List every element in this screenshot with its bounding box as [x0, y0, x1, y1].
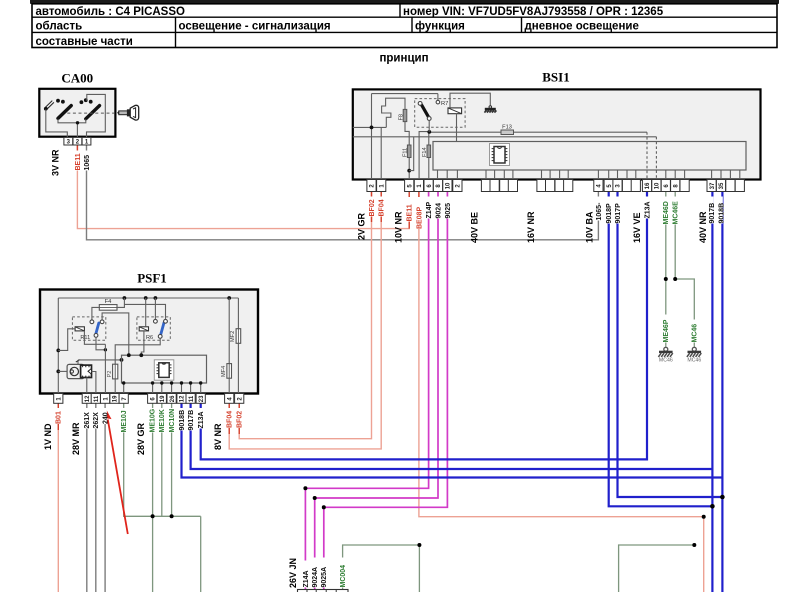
svg-text:9025A: 9025A [321, 567, 328, 588]
svg-text:R6: R6 [146, 335, 153, 341]
svg-text:BF04: BF04 [227, 411, 234, 428]
svg-text:3V NR: 3V NR [51, 149, 61, 176]
svg-text:MF4: MF4 [221, 366, 227, 377]
svg-text:BE11: BE11 [407, 204, 414, 221]
svg-text:16V VE: 16V VE [632, 212, 642, 243]
svg-text:ME46P: ME46P [663, 319, 670, 342]
svg-text:F11: F11 [403, 148, 409, 157]
svg-text:Z13A: Z13A [198, 411, 205, 428]
svg-text:10V BA: 10V BA [585, 211, 595, 243]
svg-text:BE11: BE11 [75, 153, 82, 170]
svg-text:R11: R11 [80, 335, 90, 341]
svg-text:ME10K: ME10K [159, 409, 166, 432]
svg-text:MC46: MC46 [687, 358, 701, 364]
svg-text:40V NR: 40V NR [698, 211, 708, 243]
svg-text:40V BE: 40V BE [470, 212, 480, 243]
svg-text:9017B: 9017B [709, 203, 716, 224]
svg-text:дневное освещение: дневное освещение [525, 21, 639, 33]
svg-text:9024: 9024 [435, 203, 442, 219]
svg-text:261X: 261X [84, 412, 91, 429]
svg-text:F14: F14 [422, 147, 428, 157]
svg-text:240: 240 [102, 412, 109, 424]
svg-text:10: 10 [446, 182, 452, 189]
svg-text:28V MR: 28V MR [71, 422, 81, 455]
svg-text:12: 12 [180, 395, 186, 402]
svg-text:37: 37 [710, 182, 716, 189]
svg-text:9018P: 9018P [606, 203, 613, 224]
svg-text:10: 10 [655, 182, 661, 189]
svg-text:F8: F8 [399, 114, 405, 121]
svg-text:MC10N: MC10N [169, 409, 176, 433]
svg-text:1V ND: 1V ND [43, 423, 53, 450]
svg-text:12: 12 [85, 395, 91, 402]
svg-text:составные части: составные части [36, 36, 133, 48]
svg-text:Z14A: Z14A [303, 570, 310, 587]
svg-text:MC46: MC46 [659, 358, 673, 364]
svg-text:9018B: 9018B [718, 203, 725, 224]
svg-text:BF04: BF04 [379, 199, 386, 216]
svg-text:Z14P: Z14P [426, 201, 433, 218]
svg-text:P2: P2 [107, 371, 113, 378]
svg-text:BSI1: BSI1 [542, 70, 569, 85]
svg-text:ME10G: ME10G [150, 408, 157, 432]
svg-text:9017P: 9017P [615, 203, 622, 224]
svg-text:9024A: 9024A [312, 567, 319, 588]
svg-text:16: 16 [645, 182, 651, 189]
svg-text:9025: 9025 [445, 203, 452, 219]
svg-text:освещение - сигнализация: освещение - сигнализация [179, 21, 331, 33]
svg-text:PSF1: PSF1 [137, 271, 167, 286]
svg-text:BF02: BF02 [237, 411, 244, 428]
svg-text:функция: функция [415, 21, 465, 33]
svg-text:16V NR: 16V NR [526, 211, 536, 243]
svg-text:10V NR: 10V NR [394, 211, 404, 243]
svg-text:1065: 1065 [84, 155, 91, 171]
svg-text:9017B: 9017B [188, 410, 195, 431]
svg-text:35: 35 [719, 182, 725, 189]
svg-text:11: 11 [189, 395, 195, 402]
svg-text:19: 19 [113, 395, 119, 402]
svg-text:MC46: MC46 [692, 324, 699, 343]
svg-text:11: 11 [94, 395, 100, 402]
svg-text:19: 19 [160, 395, 166, 402]
svg-text:MC004: MC004 [340, 565, 347, 588]
svg-text:2V GR: 2V GR [357, 212, 367, 240]
svg-text:B01: B01 [56, 411, 63, 424]
svg-text:ME10J: ME10J [121, 410, 128, 432]
svg-text:принцип: принцип [379, 53, 428, 65]
svg-text:BE08P: BE08P [416, 206, 423, 229]
svg-text:Z13A: Z13A [644, 201, 651, 218]
svg-text:MF2: MF2 [230, 331, 236, 342]
svg-text:BF02: BF02 [369, 199, 376, 216]
svg-text:ME46D: ME46D [663, 201, 670, 224]
svg-text:8V NR: 8V NR [213, 423, 223, 450]
svg-text:28V GR: 28V GR [136, 422, 146, 455]
svg-text:автомобиль : C4 PICASSO: автомобиль : C4 PICASSO [36, 6, 186, 18]
svg-text:F4: F4 [105, 299, 113, 305]
svg-text:262X: 262X [93, 412, 100, 429]
svg-text:26V JN: 26V JN [288, 558, 298, 588]
svg-text:26: 26 [170, 395, 176, 402]
svg-text:1065-: 1065- [596, 202, 603, 221]
svg-text:область: область [36, 21, 83, 33]
svg-text:R7: R7 [441, 101, 448, 107]
svg-text:23: 23 [199, 395, 205, 402]
svg-text:9018B: 9018B [179, 410, 186, 431]
svg-text:MC46E: MC46E [673, 201, 680, 225]
svg-text:CA00: CA00 [61, 71, 93, 86]
svg-text:номер VIN: VF7UD5FV8AJ793558 /: номер VIN: VF7UD5FV8AJ793558 / OPR : 123… [403, 6, 664, 18]
svg-text:F13: F13 [502, 124, 512, 130]
